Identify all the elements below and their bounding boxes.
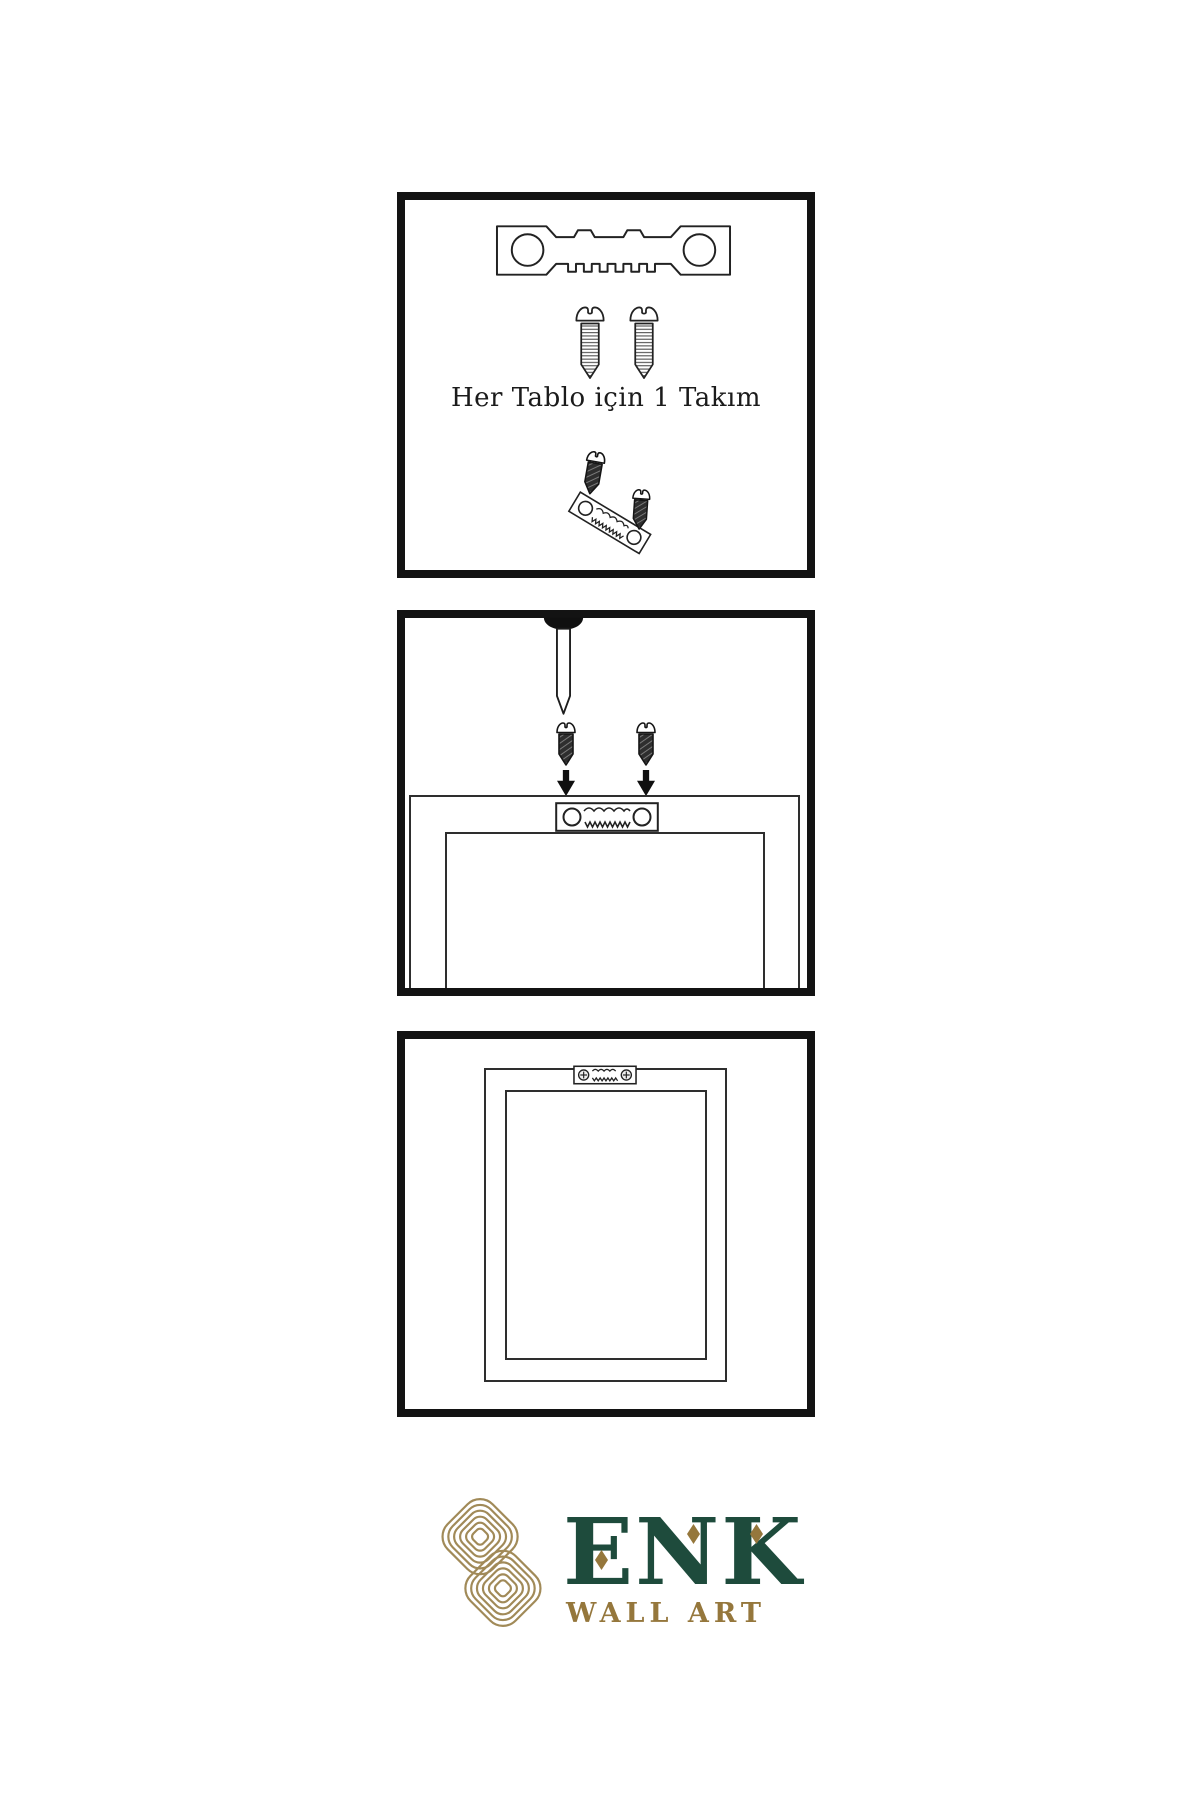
- dark-screw-icon: [554, 721, 578, 767]
- brand-logo: ENK WALL ART: [435, 1488, 815, 1653]
- brand-name: ENK: [563, 1506, 803, 1598]
- down-arrow-icon: [556, 770, 576, 797]
- wall-nail-icon: [542, 617, 585, 717]
- artwork-frame-inner: [505, 1090, 707, 1360]
- sawtooth-hanger-icon: [555, 802, 659, 832]
- instruction-sheet: Her Tablo için 1 Takım: [0, 0, 1200, 1800]
- brand-subtitle: WALL ART: [566, 1600, 766, 1627]
- panel-hardware-kit: Her Tablo için 1 Takım: [397, 192, 815, 578]
- sawtooth-hanger-icon: [495, 223, 732, 278]
- dark-screw-icon: [578, 448, 609, 497]
- mounted-sawtooth-hanger-icon: [573, 1065, 637, 1085]
- screw-icon: [627, 305, 661, 381]
- kit-caption: Her Tablo için 1 Takım: [405, 383, 807, 413]
- dark-screw-icon: [629, 487, 653, 531]
- down-arrow-icon: [636, 770, 656, 797]
- frame-back-inner: [445, 832, 765, 988]
- panel-hung-frame: [397, 1031, 815, 1417]
- dark-screw-icon: [634, 721, 658, 767]
- knot-logo-icon: [435, 1490, 548, 1635]
- screw-icon: [573, 305, 607, 381]
- panel-attach-hanger: [397, 610, 815, 996]
- mounting-detail: [570, 448, 700, 563]
